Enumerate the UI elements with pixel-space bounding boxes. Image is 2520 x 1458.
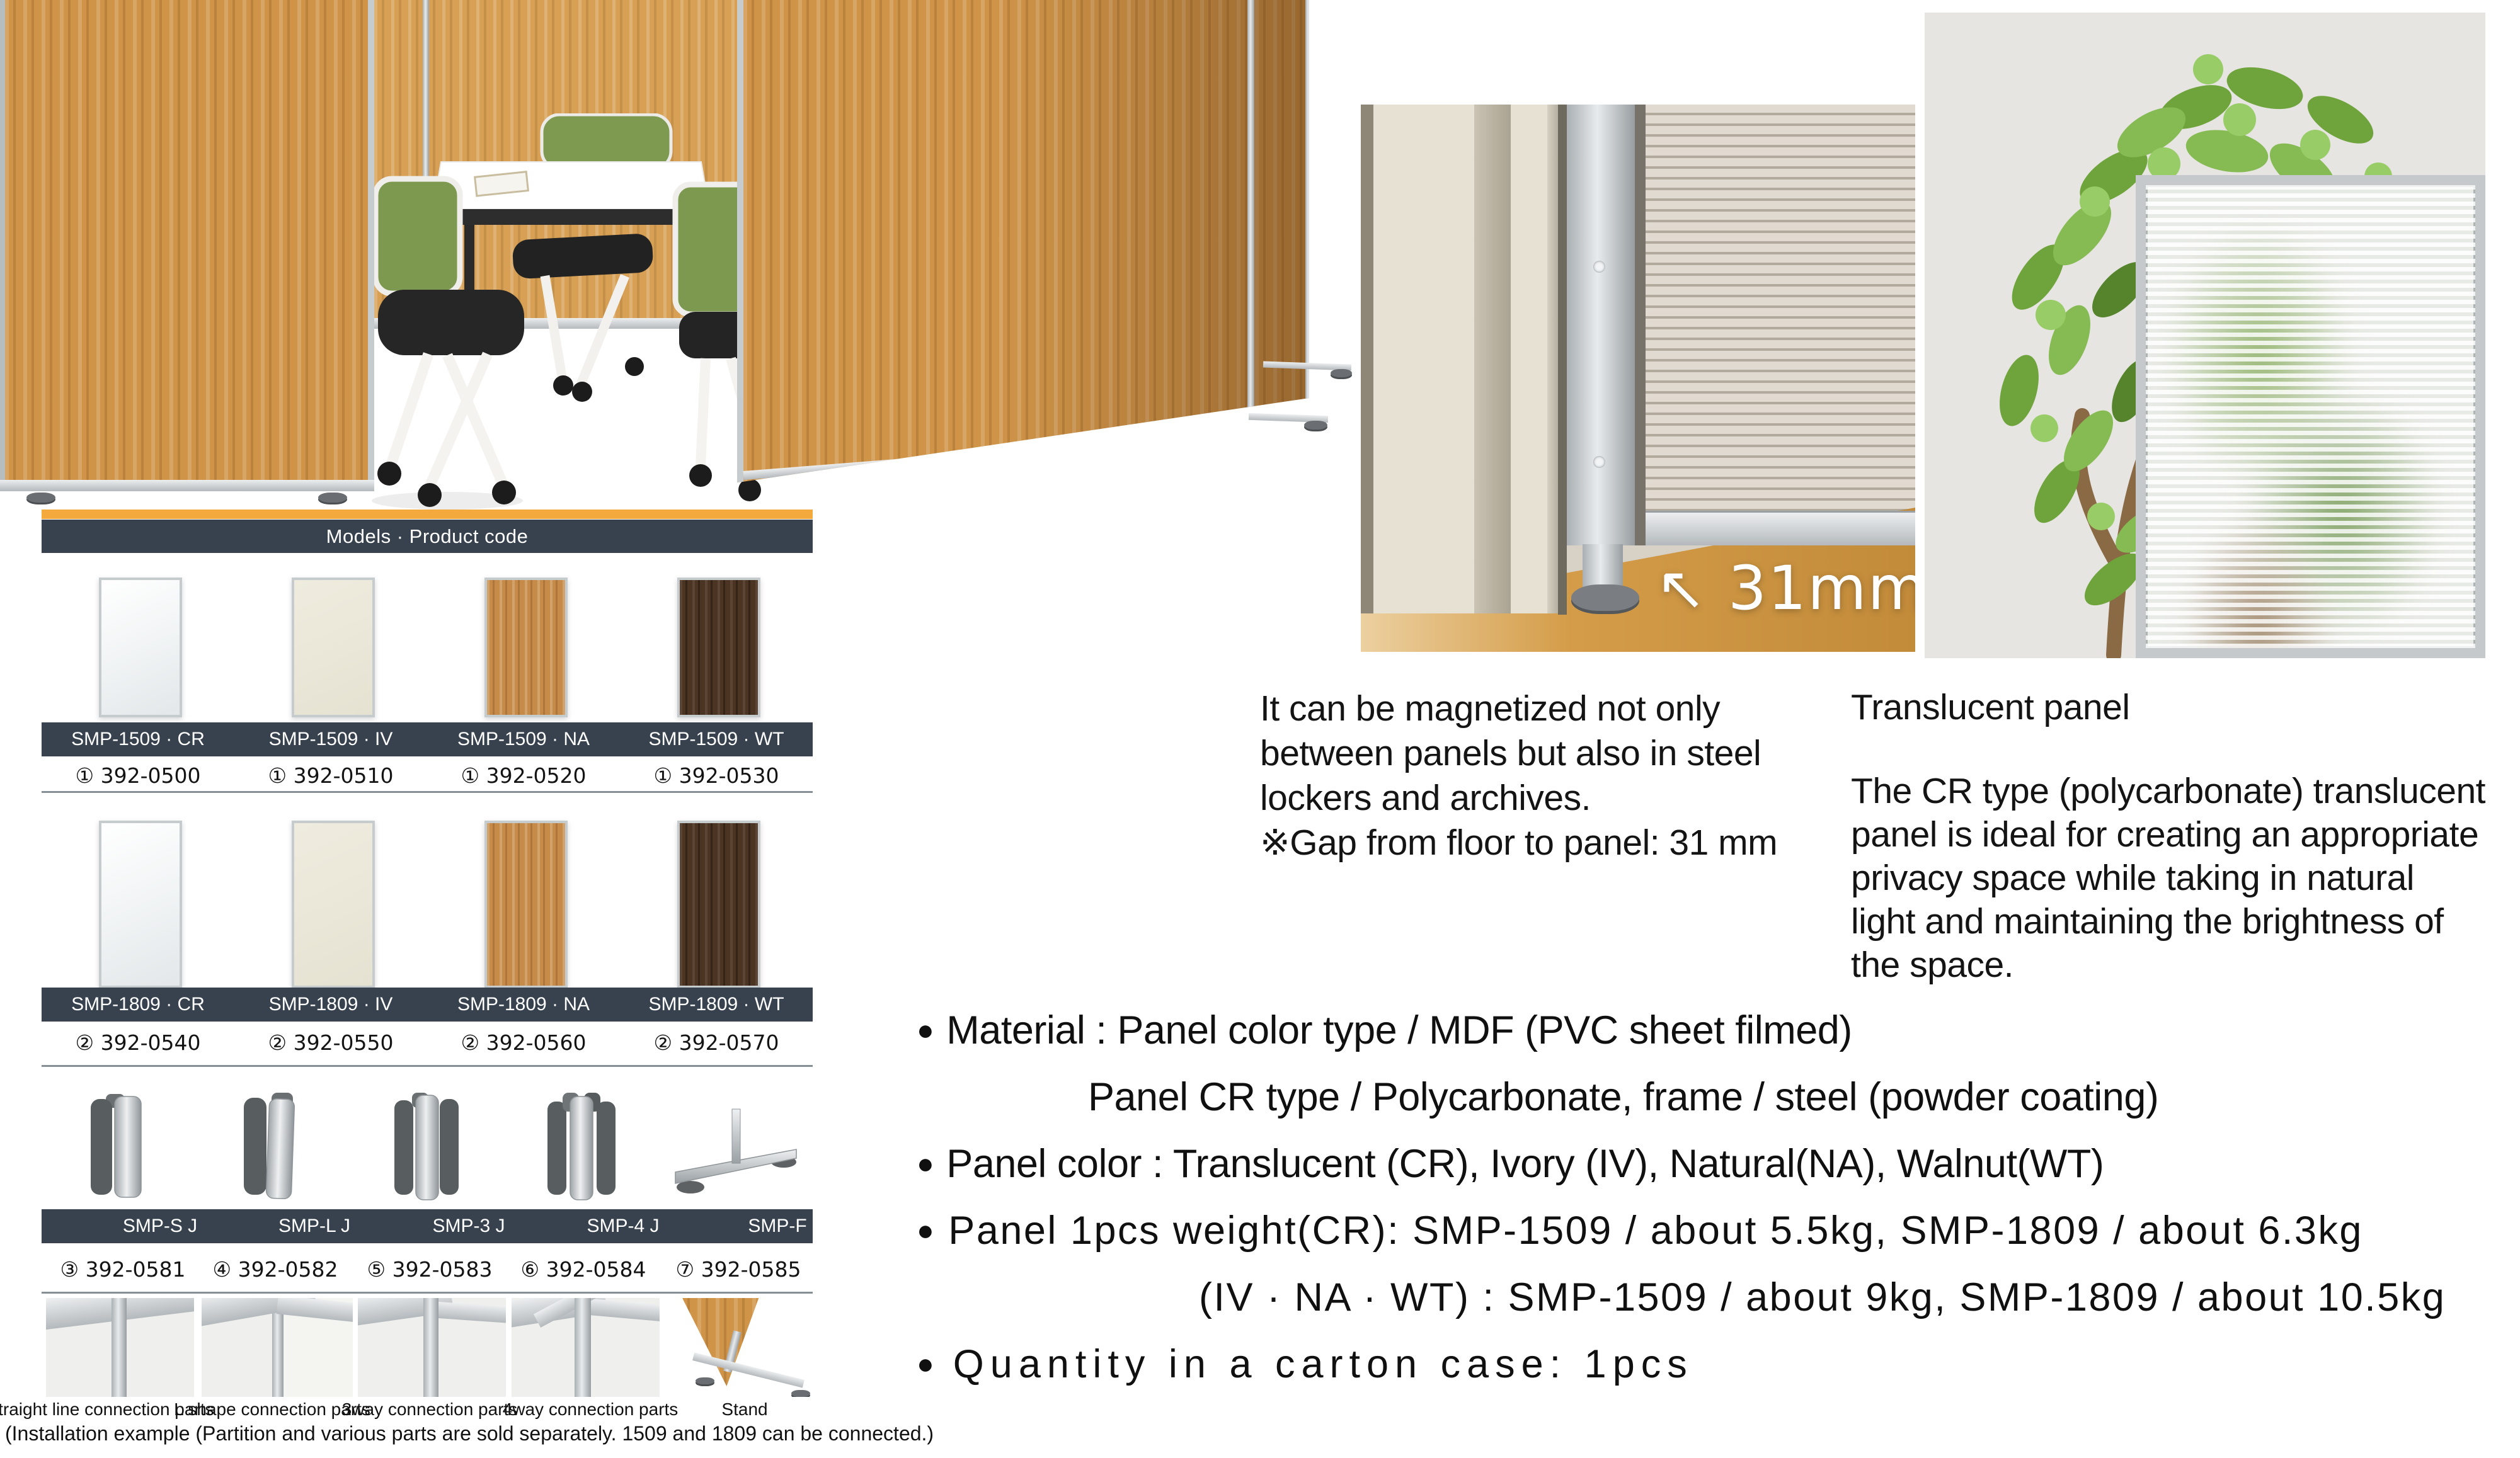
translucent-description-line: light and maintaining the brightness of	[1851, 900, 2485, 943]
gap-photo: ↖ 31mm	[1361, 105, 1915, 652]
spec-material-cr: Panel CR type / Polycarbonate, frame / s…	[917, 1074, 2446, 1141]
bullet-icon: ●	[917, 1146, 934, 1180]
gap-measurement-label: ↖ 31mm	[1656, 553, 1915, 624]
right-partition-wall	[737, 0, 1309, 498]
part-stand	[667, 1091, 805, 1205]
model-label: SMP-4 J	[587, 1209, 659, 1243]
steel-locker	[1361, 105, 1558, 613]
product-code: ② 392-0560	[461, 1030, 587, 1055]
model-label: SMP-1509 · WT	[648, 722, 784, 756]
example-straight	[46, 1298, 194, 1397]
translucent-description-line: the space.	[1851, 943, 2485, 987]
adjuster-foot	[1571, 584, 1639, 611]
row-divider	[42, 1065, 813, 1067]
translucent-description-line: The CR type (polycarbonate) translucent	[1851, 770, 2485, 813]
panel-bottom-rail	[1646, 511, 1915, 545]
bullet-icon: ●	[917, 1013, 934, 1047]
model-label: SMP-1509 · CR	[71, 722, 205, 756]
example-caption: 4way connection parts	[503, 1399, 679, 1420]
screw	[1593, 261, 1605, 273]
swatch-1509-wt	[677, 578, 760, 717]
model-label: SMP-1809 · CR	[71, 988, 205, 1022]
swatch-1809-iv	[292, 821, 375, 988]
swatch-1809-cr	[99, 821, 182, 988]
example-l-shape	[202, 1298, 353, 1397]
product-code: ② 392-0550	[268, 1030, 394, 1055]
example-caption: Stand	[721, 1399, 767, 1420]
panel-post	[1567, 105, 1635, 545]
product-code: ⑤ 392-0583	[367, 1257, 493, 1282]
row3-label-bar: SMP-S J SMP-L J SMP-3 J SMP-4 J SMP-F	[42, 1209, 813, 1243]
accent-bar	[42, 510, 813, 519]
model-label: SMP-F	[748, 1209, 806, 1243]
magnet-note-line: lockers and archives.	[1260, 776, 1777, 821]
swatch-1509-iv	[292, 578, 375, 717]
spec-weight-cr: ●Panel 1pcs weight(CR): SMP-1509 / about…	[917, 1208, 2446, 1275]
part-3way-connector	[389, 1091, 465, 1205]
right-wall-seam	[1247, 0, 1254, 498]
translucent-description-line: privacy space while taking in natural	[1851, 857, 2485, 900]
part-straight-connector	[81, 1091, 156, 1205]
magnet-note: It can be magnetized not only between pa…	[1260, 686, 1777, 865]
swatch-1509-na	[484, 578, 568, 717]
models-table: Models · Product code SMP-1509 · CR SMP-…	[0, 0, 819, 1458]
catalog-page: Models · Product code SMP-1509 · CR SMP-…	[0, 0, 2520, 1458]
spec-weight-color: (IV · NA · WT) : SMP-1509 / about 9kg, S…	[917, 1275, 2446, 1341]
spec-list: ●Material : Panel color type / MDF (PVC …	[917, 1008, 2446, 1408]
wall-stand-foot-disc	[1331, 369, 1352, 377]
product-code: ② 392-0570	[654, 1030, 779, 1055]
product-code: ④ 392-0582	[213, 1257, 338, 1282]
example-4way	[512, 1298, 660, 1397]
example-stand	[668, 1298, 819, 1397]
product-code: ⑥ 392-0584	[521, 1257, 646, 1282]
translucent-description: The CR type (polycarbonate) translucent …	[1851, 770, 2485, 987]
table-header: Models · Product code	[42, 520, 813, 553]
swatch-1509-cr	[99, 578, 182, 717]
product-code: ① 392-0520	[461, 763, 587, 788]
spec-carton-qty: ●Quantity in a carton case: 1pcs	[917, 1341, 2446, 1408]
example-caption: 3way connection parts	[342, 1399, 518, 1420]
row1-label-bar: SMP-1509 · CR SMP-1509 · IV SMP-1509 · N…	[42, 722, 813, 756]
spec-material: ●Material : Panel color type / MDF (PVC …	[917, 1008, 2446, 1074]
product-code: ③ 392-0581	[60, 1257, 186, 1282]
row-divider	[42, 791, 813, 793]
bullet-icon: ●	[917, 1347, 941, 1381]
product-code: ② 392-0540	[76, 1030, 201, 1055]
model-label: SMP-3 J	[432, 1209, 505, 1243]
model-label: SMP-S J	[123, 1209, 197, 1243]
example-caption: L shape connection parts	[174, 1399, 370, 1420]
table-header-label: Models · Product code	[326, 525, 529, 548]
spec-panel-color: ●Panel color : Translucent (CR), Ivory (…	[917, 1141, 2446, 1208]
swatch-1809-wt	[677, 821, 760, 988]
part-4way-connector	[544, 1091, 619, 1205]
ribbed-panel	[1646, 105, 1915, 545]
magnet-note-line: It can be magnetized not only	[1260, 686, 1777, 731]
post-dark-edge	[1635, 105, 1646, 545]
model-label: SMP-1509 · IV	[269, 722, 393, 756]
model-label: SMP-L J	[278, 1209, 350, 1243]
model-label: SMP-1809 · IV	[269, 988, 393, 1022]
row2-label-bar: SMP-1809 · CR SMP-1809 · IV SMP-1809 · N…	[42, 988, 813, 1022]
model-label: SMP-1809 · WT	[648, 988, 784, 1022]
product-code: ① 392-0510	[268, 763, 394, 788]
model-label: SMP-1809 · NA	[457, 988, 590, 1022]
magnet-note-line: between panels but also in steel	[1260, 731, 1777, 776]
wall-stand-foot-disc2	[1304, 421, 1327, 430]
product-code: ① 392-0530	[654, 763, 779, 788]
magnet-note-line: ※Gap from floor to panel: 31 mm	[1260, 821, 1777, 865]
part-l-connector	[235, 1091, 311, 1205]
installation-footnote: (Installation example (Partition and var…	[5, 1422, 934, 1445]
row-divider	[42, 1292, 813, 1294]
bullet-icon: ●	[917, 1213, 936, 1247]
translucent-panel	[2136, 175, 2485, 658]
screw2	[1593, 456, 1605, 468]
translucent-photo	[1925, 13, 2485, 658]
translucent-description-line: panel is ideal for creating an appropria…	[1851, 813, 2485, 857]
translucent-title: Translucent panel	[1851, 685, 2130, 730]
example-3way	[358, 1298, 506, 1397]
model-label: SMP-1509 · NA	[457, 722, 590, 756]
swatch-1809-na	[484, 821, 568, 988]
shadow-gap	[1558, 105, 1567, 615]
product-code: ① 392-0500	[76, 763, 201, 788]
product-code: ⑦ 392-0585	[676, 1257, 801, 1282]
